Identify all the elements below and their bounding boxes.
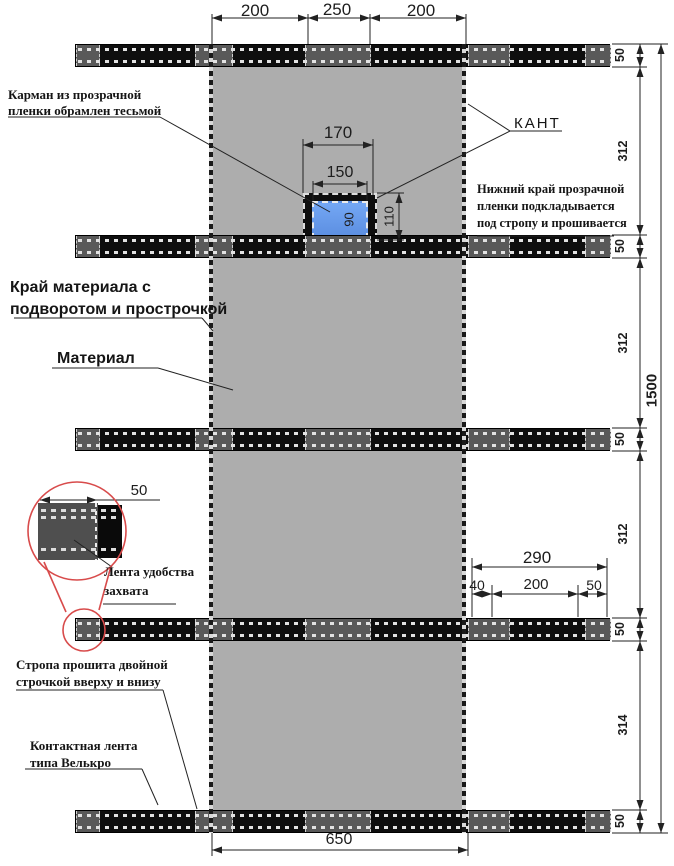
pocket-label: Карман из прозрачной пленки обрамлен тес…: [8, 87, 161, 119]
dimension-arrowhead: [637, 451, 644, 461]
dimension-arrowhead: [492, 591, 502, 598]
strap-band: [75, 428, 610, 451]
pocket-label-line2: пленки обрамлен тесьмой: [8, 103, 161, 119]
strap-stitch-row: [78, 251, 607, 254]
dimension-arrowhead: [456, 15, 466, 22]
grip-tape-line2: захвата: [104, 581, 194, 600]
strap-stitch-row: [78, 814, 607, 817]
dimension-arrowhead: [212, 15, 222, 22]
dimension-arrowhead: [637, 418, 644, 428]
dim-grip-width: 50: [131, 482, 148, 499]
dimension-arrowhead: [637, 441, 644, 451]
pocket-transparent-film: [312, 201, 368, 239]
film-bottom-line1: Нижний край прозрачной: [477, 181, 627, 198]
film-bottom-label: Нижний край прозрачной пленки подкладыва…: [477, 181, 627, 232]
grip-tape-label: Лента удобства захвата: [104, 562, 194, 600]
velcro-line1: Контактная лента: [30, 737, 138, 754]
strap-stitch-row: [78, 622, 607, 625]
grip-tape-detail-stitch-row: [41, 509, 119, 512]
dim-panel-2: 312: [616, 326, 630, 360]
dimension-arrowhead: [360, 15, 370, 22]
dimension-arrowhead: [458, 847, 468, 854]
dim-strap-height-1: 50: [613, 43, 627, 67]
strap-stitch-row: [78, 444, 607, 447]
dimension-arrowhead: [637, 258, 644, 268]
dim-right-40: 40: [469, 577, 485, 593]
dimension-arrowhead: [637, 235, 644, 245]
drawing-line: [142, 769, 158, 805]
dimension-arrowhead: [637, 800, 644, 810]
grip-tape-detail-stitch-row: [41, 548, 119, 551]
dimension-arrowhead: [370, 15, 380, 22]
strap-stitch-row: [78, 60, 607, 63]
dimension-arrowhead: [637, 608, 644, 618]
dim-top-left: 200: [241, 1, 269, 21]
dim-strap-height-2: 50: [613, 234, 627, 258]
dimension-arrowhead: [637, 57, 644, 67]
strap-stitch-label: Стропа прошита двойной строчкой вверху и…: [16, 656, 168, 690]
kant-label: КАНТ: [514, 115, 561, 132]
film-bottom-line2: пленки подкладывается: [477, 198, 627, 215]
material-edge-line2: подворотом и прострочкой: [10, 299, 227, 321]
dim-top-right: 200: [407, 1, 435, 21]
strap-stitch-row: [78, 826, 607, 829]
dim-right-total: 290: [523, 548, 551, 568]
dimension-arrowhead: [597, 564, 607, 571]
dim-pocket-total-height: 110: [382, 197, 397, 237]
strap-stitch-line1: Стропа прошита двойной: [16, 656, 168, 673]
detail-callout-line: [44, 562, 66, 612]
dim-material-width: 650: [326, 831, 353, 849]
dim-pocket-visible-height: 90: [342, 205, 357, 235]
strap-band: [75, 618, 610, 641]
dimension-arrowhead: [637, 641, 644, 651]
dim-panel-1: 312: [616, 134, 630, 168]
drawing-line: [468, 104, 510, 131]
grip-tape-detail-stitch-row: [41, 516, 119, 519]
dimension-arrowhead: [472, 564, 482, 571]
drawing-line: [163, 690, 197, 809]
dimension-arrowhead: [658, 823, 665, 833]
dimension-arrowhead: [637, 618, 644, 628]
dim-strap-height-3: 50: [613, 427, 627, 451]
dim-strap-height-4: 50: [613, 617, 627, 641]
dim-pocket-inner: 150: [327, 164, 354, 182]
strap-band: [75, 44, 610, 67]
strap-stitch-row: [78, 239, 607, 242]
dimension-arrowhead: [637, 67, 644, 77]
material-edge-line1: Край материала с: [10, 277, 227, 299]
dimension-arrowhead: [637, 225, 644, 235]
dimension-arrowhead: [212, 847, 222, 854]
strap-stitch-row: [78, 634, 607, 637]
dimension-arrowhead: [658, 44, 665, 54]
grip-tape-line1: Лента удобства: [104, 562, 194, 581]
dimension-arrowhead: [298, 15, 308, 22]
dimension-arrowhead: [637, 248, 644, 258]
dim-panel-3: 312: [616, 517, 630, 551]
strap-stitch-row: [78, 432, 607, 435]
dim-strap-height-5: 50: [613, 809, 627, 833]
dimension-arrowhead: [637, 428, 644, 438]
strap-band: [75, 810, 610, 833]
pocket-label-line1: Карман из прозрачной: [8, 87, 161, 103]
material-left-edge-stitch: [209, 44, 213, 833]
material-edge-label: Край материала с подворотом и прострочко…: [10, 277, 227, 321]
strap-band: [75, 235, 610, 258]
strap-stitch-row: [78, 48, 607, 51]
dim-total-height: 1500: [644, 369, 661, 413]
dim-right-50: 50: [586, 577, 602, 593]
dimension-arrowhead: [308, 15, 318, 22]
dimension-arrowhead: [637, 823, 644, 833]
dimension-arrowhead: [637, 44, 644, 54]
material-label: Материал: [57, 348, 135, 370]
dim-panel-4: 314: [616, 708, 630, 742]
dimension-arrowhead: [637, 631, 644, 641]
dim-pocket-outer: 170: [324, 123, 352, 143]
dim-right-200: 200: [523, 576, 548, 593]
velcro-line2: типа Велькро: [30, 754, 138, 771]
dim-top-middle: 250: [323, 0, 351, 20]
strap-stitch-line2: строчкой вверху и внизу: [16, 673, 168, 690]
velcro-label: Контактная лента типа Велькро: [30, 737, 138, 771]
technical-drawing-cover-layout: Карман из прозрачной пленки обрамлен тес…: [0, 0, 674, 866]
dimension-arrowhead: [568, 591, 578, 598]
material-right-edge-stitch: [462, 44, 466, 833]
film-bottom-line3: под стропу и прошивается: [477, 215, 627, 232]
dimension-arrowhead: [637, 810, 644, 820]
